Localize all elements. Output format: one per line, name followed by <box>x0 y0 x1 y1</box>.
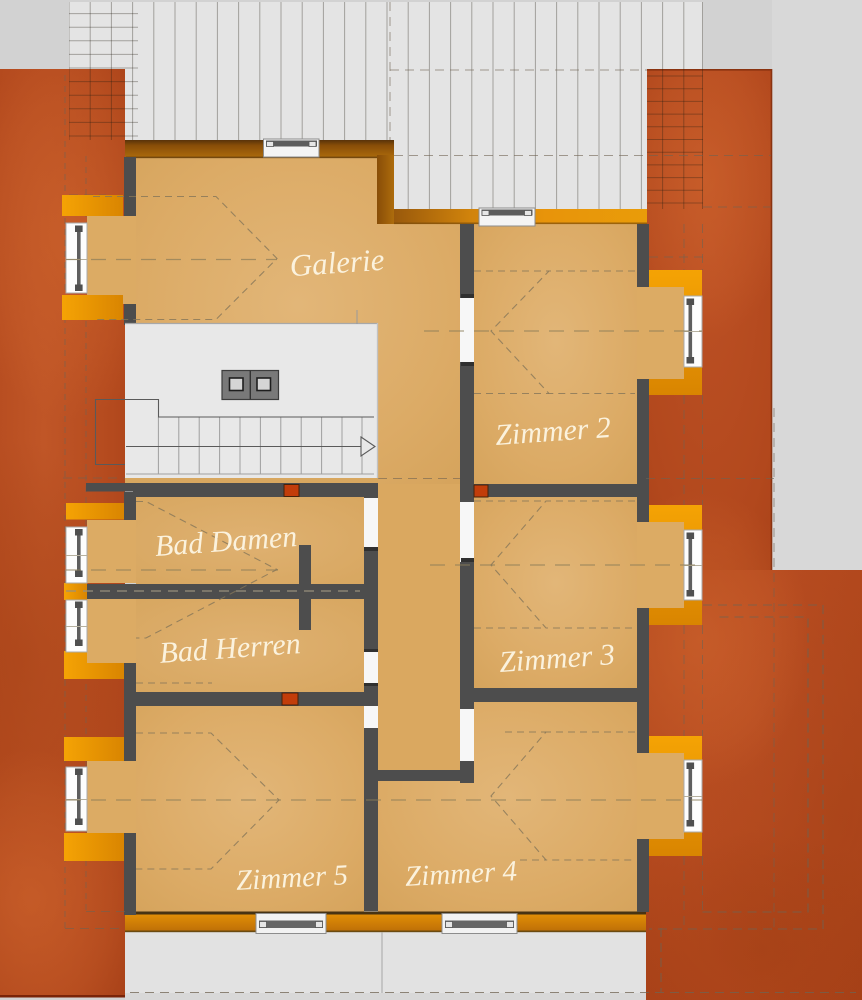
svg-text:Zimmer 4: Zimmer 4 <box>404 855 518 893</box>
svg-text:Galerie: Galerie <box>289 242 386 284</box>
svg-text:Zimmer 5: Zimmer 5 <box>235 859 349 897</box>
